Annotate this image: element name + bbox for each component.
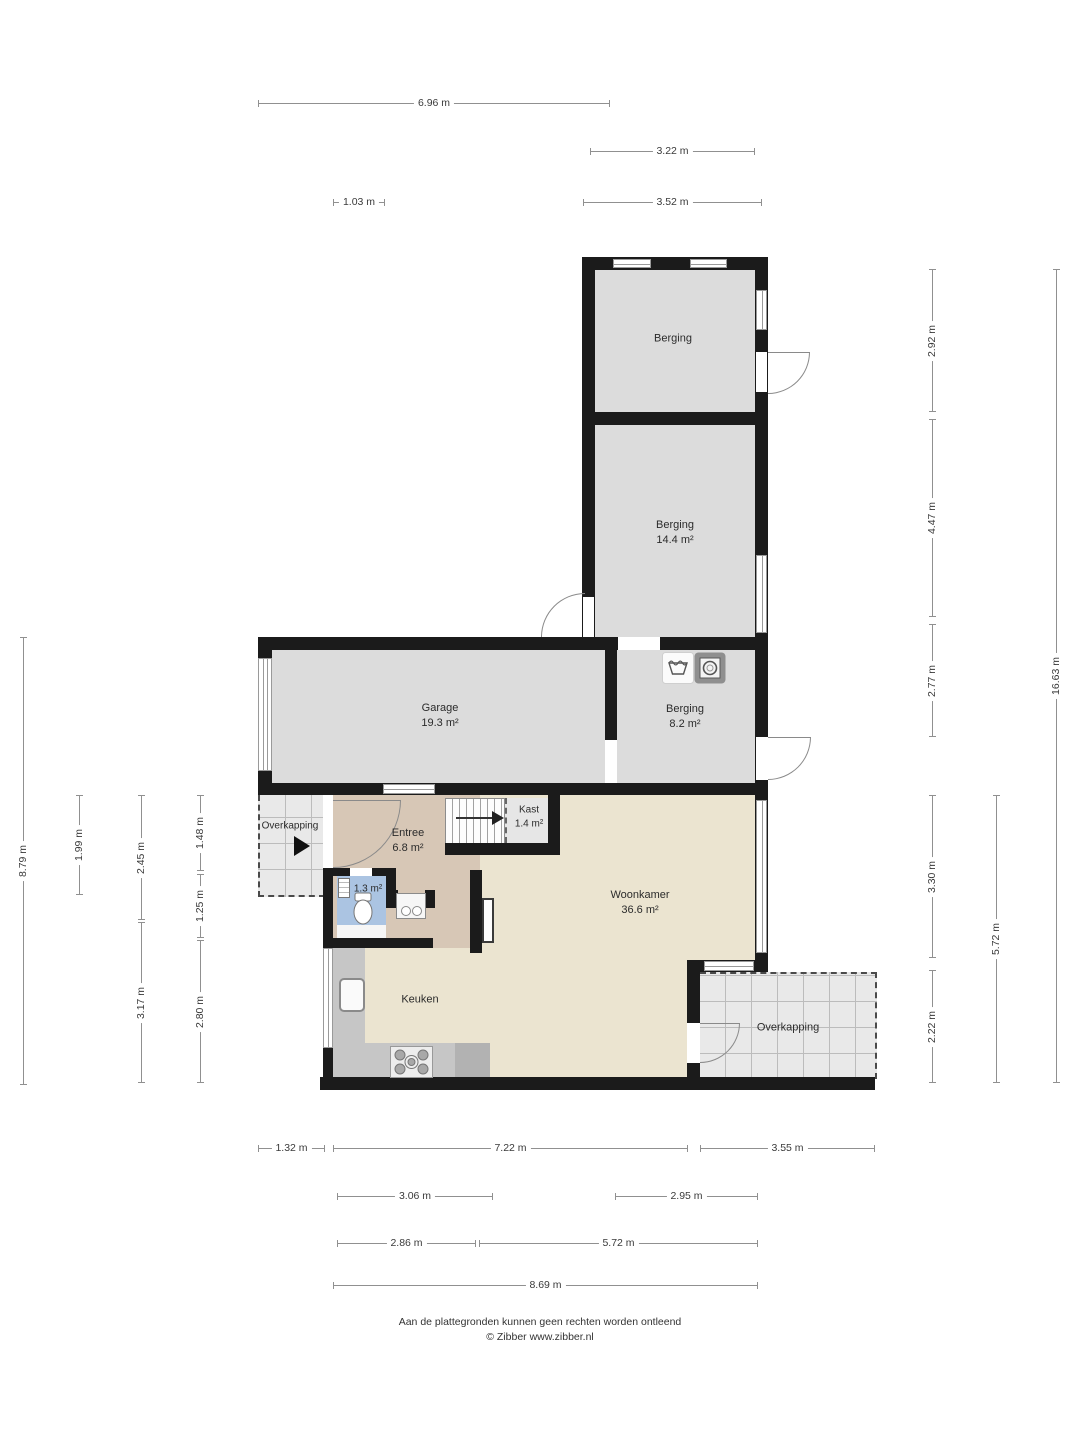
dimension: 3.06 m	[337, 1189, 493, 1203]
wall-annex-divider	[582, 412, 768, 425]
kitchen-sink-icon	[339, 978, 365, 1012]
dimension-label: 8.79 m	[17, 841, 29, 881]
passage-berging-mid-small	[618, 637, 660, 650]
door-arc-berging-top	[768, 352, 810, 394]
room-label-berging-top: Berging	[654, 332, 692, 347]
room-area: 8.2 m²	[666, 717, 704, 732]
dimension: 2.22 m	[925, 970, 939, 1083]
door-berging-small-right	[756, 737, 768, 780]
gas-hob-icon	[390, 1046, 433, 1078]
door-arc-berging-small	[768, 737, 811, 780]
floor-toilet-lower	[337, 925, 386, 938]
dimension: 8.69 m	[333, 1278, 758, 1292]
footer-copyright: © Zibber www.zibber.nl	[0, 1331, 1080, 1343]
window-woonkamer-right	[756, 800, 767, 953]
dimension-label: 3.52 m	[652, 196, 692, 208]
dimension: 2.45 m	[134, 795, 148, 920]
floor-woonkamer-right	[700, 795, 755, 960]
window-berging-mid-right	[756, 555, 767, 633]
front-door	[323, 795, 333, 868]
wall-toilet-bottom	[333, 938, 433, 948]
window-woonkamer-patio	[704, 961, 754, 971]
water-heater-icon	[338, 878, 350, 898]
room-area: 36.6 m²	[610, 903, 669, 918]
wall-house-left-mid	[323, 868, 333, 948]
room-name: Kast	[515, 804, 543, 818]
dimension: 2.95 m	[615, 1189, 758, 1203]
dimension: 3.52 m	[583, 195, 762, 209]
room-label-overkapping-left: Overkapping	[262, 819, 319, 833]
dimension-label: 4.47 m	[926, 498, 938, 538]
dimension-label: 2.95 m	[666, 1190, 706, 1202]
dimension-label: 3.22 m	[652, 145, 692, 157]
room-label-keuken: Keuken	[401, 993, 438, 1008]
stairs-arrow-icon	[492, 811, 504, 825]
dimension-label: 16.63 m	[1050, 653, 1062, 699]
dimension-label: 5.72 m	[990, 919, 1002, 959]
room-name: Woonkamer	[610, 888, 669, 903]
room-area: 19.3 m²	[421, 716, 458, 731]
door-toilet	[350, 868, 372, 876]
dimension: 8.79 m	[16, 637, 30, 1085]
wall-garage-bottom	[258, 783, 768, 795]
dimension-label: 3.30 m	[926, 856, 938, 896]
wall-under-stairs	[445, 843, 550, 855]
dimension-label: 2.86 m	[386, 1237, 426, 1249]
dimension-label: 2.22 m	[926, 1006, 938, 1046]
dimension: 2.86 m	[337, 1236, 476, 1250]
entrance-arrow-icon	[294, 836, 310, 856]
dimension-label: 2.45 m	[135, 837, 147, 877]
dimension: 2.77 m	[925, 624, 939, 737]
room-area: 6.8 m²	[392, 841, 424, 856]
dimension: 5.72 m	[479, 1236, 758, 1250]
washbasin-icon	[396, 893, 426, 919]
wall-garage-top	[258, 637, 768, 650]
room-name: Overkapping	[262, 819, 319, 833]
dimension: 2.80 m	[193, 940, 207, 1083]
dimension: 5.72 m	[989, 795, 1003, 1083]
patio-left	[258, 795, 325, 897]
laundry-basket-icon	[662, 652, 694, 684]
window-berging-top-right	[756, 290, 767, 330]
wall-annex-left	[582, 257, 595, 648]
room-label-entree: Entree 6.8 m²	[392, 826, 424, 856]
dimension-label: 1.48 m	[194, 813, 206, 853]
dimension: 1.99 m	[72, 795, 86, 895]
room-name: Garage	[421, 701, 458, 716]
room-label-toilet: 1.3 m²	[354, 882, 382, 896]
kitchen-counter-dark	[455, 1043, 490, 1077]
dimension-label: 5.72 m	[598, 1237, 638, 1249]
wall-house-bottom	[320, 1077, 875, 1090]
dimension-label: 2.92 m	[926, 320, 938, 360]
room-label-berging-small: Berging 8.2 m²	[666, 702, 704, 732]
floor-plan: Berging Berging 14.4 m² Garage 19.3 m² B…	[0, 0, 1080, 1440]
passage-garage-berging	[605, 740, 617, 783]
dimension: 3.30 m	[925, 795, 939, 958]
room-name: Berging	[656, 518, 694, 533]
dimension-label: 7.22 m	[490, 1142, 530, 1154]
dimension: 6.96 m	[258, 96, 610, 110]
dimension: 16.63 m	[1049, 269, 1063, 1083]
wall-entree-woonkamer	[470, 870, 482, 953]
room-label-overkapping-right: Overkapping	[757, 1021, 819, 1036]
window-keuken-left	[323, 948, 333, 1048]
room-name: Berging	[654, 332, 692, 347]
washing-machine-icon	[694, 652, 726, 684]
footer-disclaimer: Aan de plattegronden kunnen geen rechten…	[0, 1316, 1080, 1328]
room-area: 14.4 m²	[656, 533, 694, 548]
stairs-arrow-line	[456, 817, 494, 819]
room-label-garage: Garage 19.3 m²	[421, 701, 458, 731]
room-name: Berging	[666, 702, 704, 717]
window-garage-entree	[383, 784, 435, 794]
dimension: 1.25 m	[193, 874, 207, 938]
dimension: 3.55 m	[700, 1141, 875, 1155]
dimension-label: 2.77 m	[926, 660, 938, 700]
room-name: Entree	[392, 826, 424, 841]
room-label-berging-mid: Berging 14.4 m²	[656, 518, 694, 548]
room-name: Overkapping	[757, 1021, 819, 1036]
dimension: 4.47 m	[925, 419, 939, 617]
dimension: 3.17 m	[134, 922, 148, 1083]
door-woonkamer-patio	[687, 1023, 700, 1063]
wall-kast-right	[548, 795, 560, 855]
dimension-label: 8.69 m	[525, 1279, 565, 1291]
dimension: 1.48 m	[193, 795, 207, 871]
room-label-woonkamer: Woonkamer 36.6 m²	[610, 888, 669, 918]
dimension: 7.22 m	[333, 1141, 688, 1155]
dimension-label: 3.17 m	[135, 982, 147, 1022]
toilet-icon	[352, 892, 374, 926]
dimension: 2.92 m	[925, 269, 939, 412]
window-annex-top-2	[690, 259, 727, 268]
wall-annex-top	[582, 257, 768, 270]
wall-basin-stub-right	[425, 890, 435, 908]
room-area: 1.3 m²	[354, 882, 382, 896]
dimension-label: 1.32 m	[271, 1142, 311, 1154]
dimension: 1.32 m	[258, 1141, 325, 1155]
dimension: 1.03 m	[333, 195, 385, 209]
dimension-label: 1.25 m	[194, 886, 206, 926]
garage-door	[258, 658, 272, 771]
window-annex-top-1	[613, 259, 651, 268]
room-name: Keuken	[401, 993, 438, 1008]
dimension-label: 3.55 m	[767, 1142, 807, 1154]
room-area: 1.4 m²	[515, 817, 543, 831]
dimension-label: 6.96 m	[414, 97, 454, 109]
dimension-label: 1.03 m	[339, 196, 379, 208]
door-arc-berging-mid	[541, 593, 585, 637]
dimension-label: 1.99 m	[73, 825, 85, 865]
dimension: 3.22 m	[590, 144, 755, 158]
door-berging-top-right	[756, 352, 767, 392]
dimension-label: 2.80 m	[194, 991, 206, 1031]
wall-object	[482, 898, 494, 943]
dimension-label: 3.06 m	[395, 1190, 435, 1202]
room-label-kast: Kast 1.4 m²	[515, 804, 543, 831]
